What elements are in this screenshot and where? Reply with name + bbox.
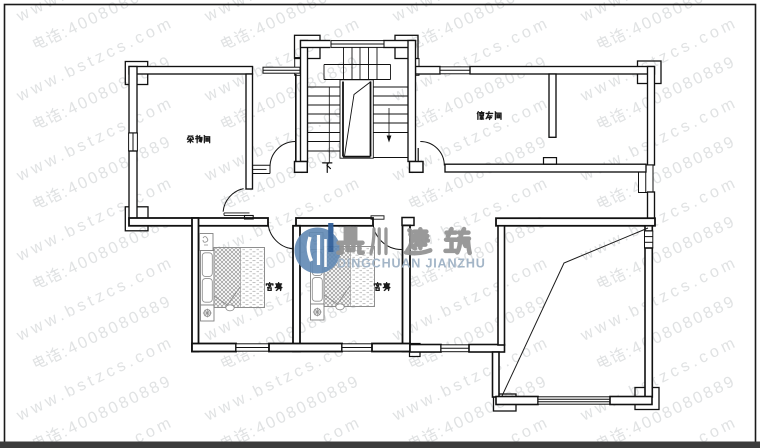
svg-text:DINGCHUAN JIANZHU: DINGCHUAN JIANZHU xyxy=(337,257,486,271)
